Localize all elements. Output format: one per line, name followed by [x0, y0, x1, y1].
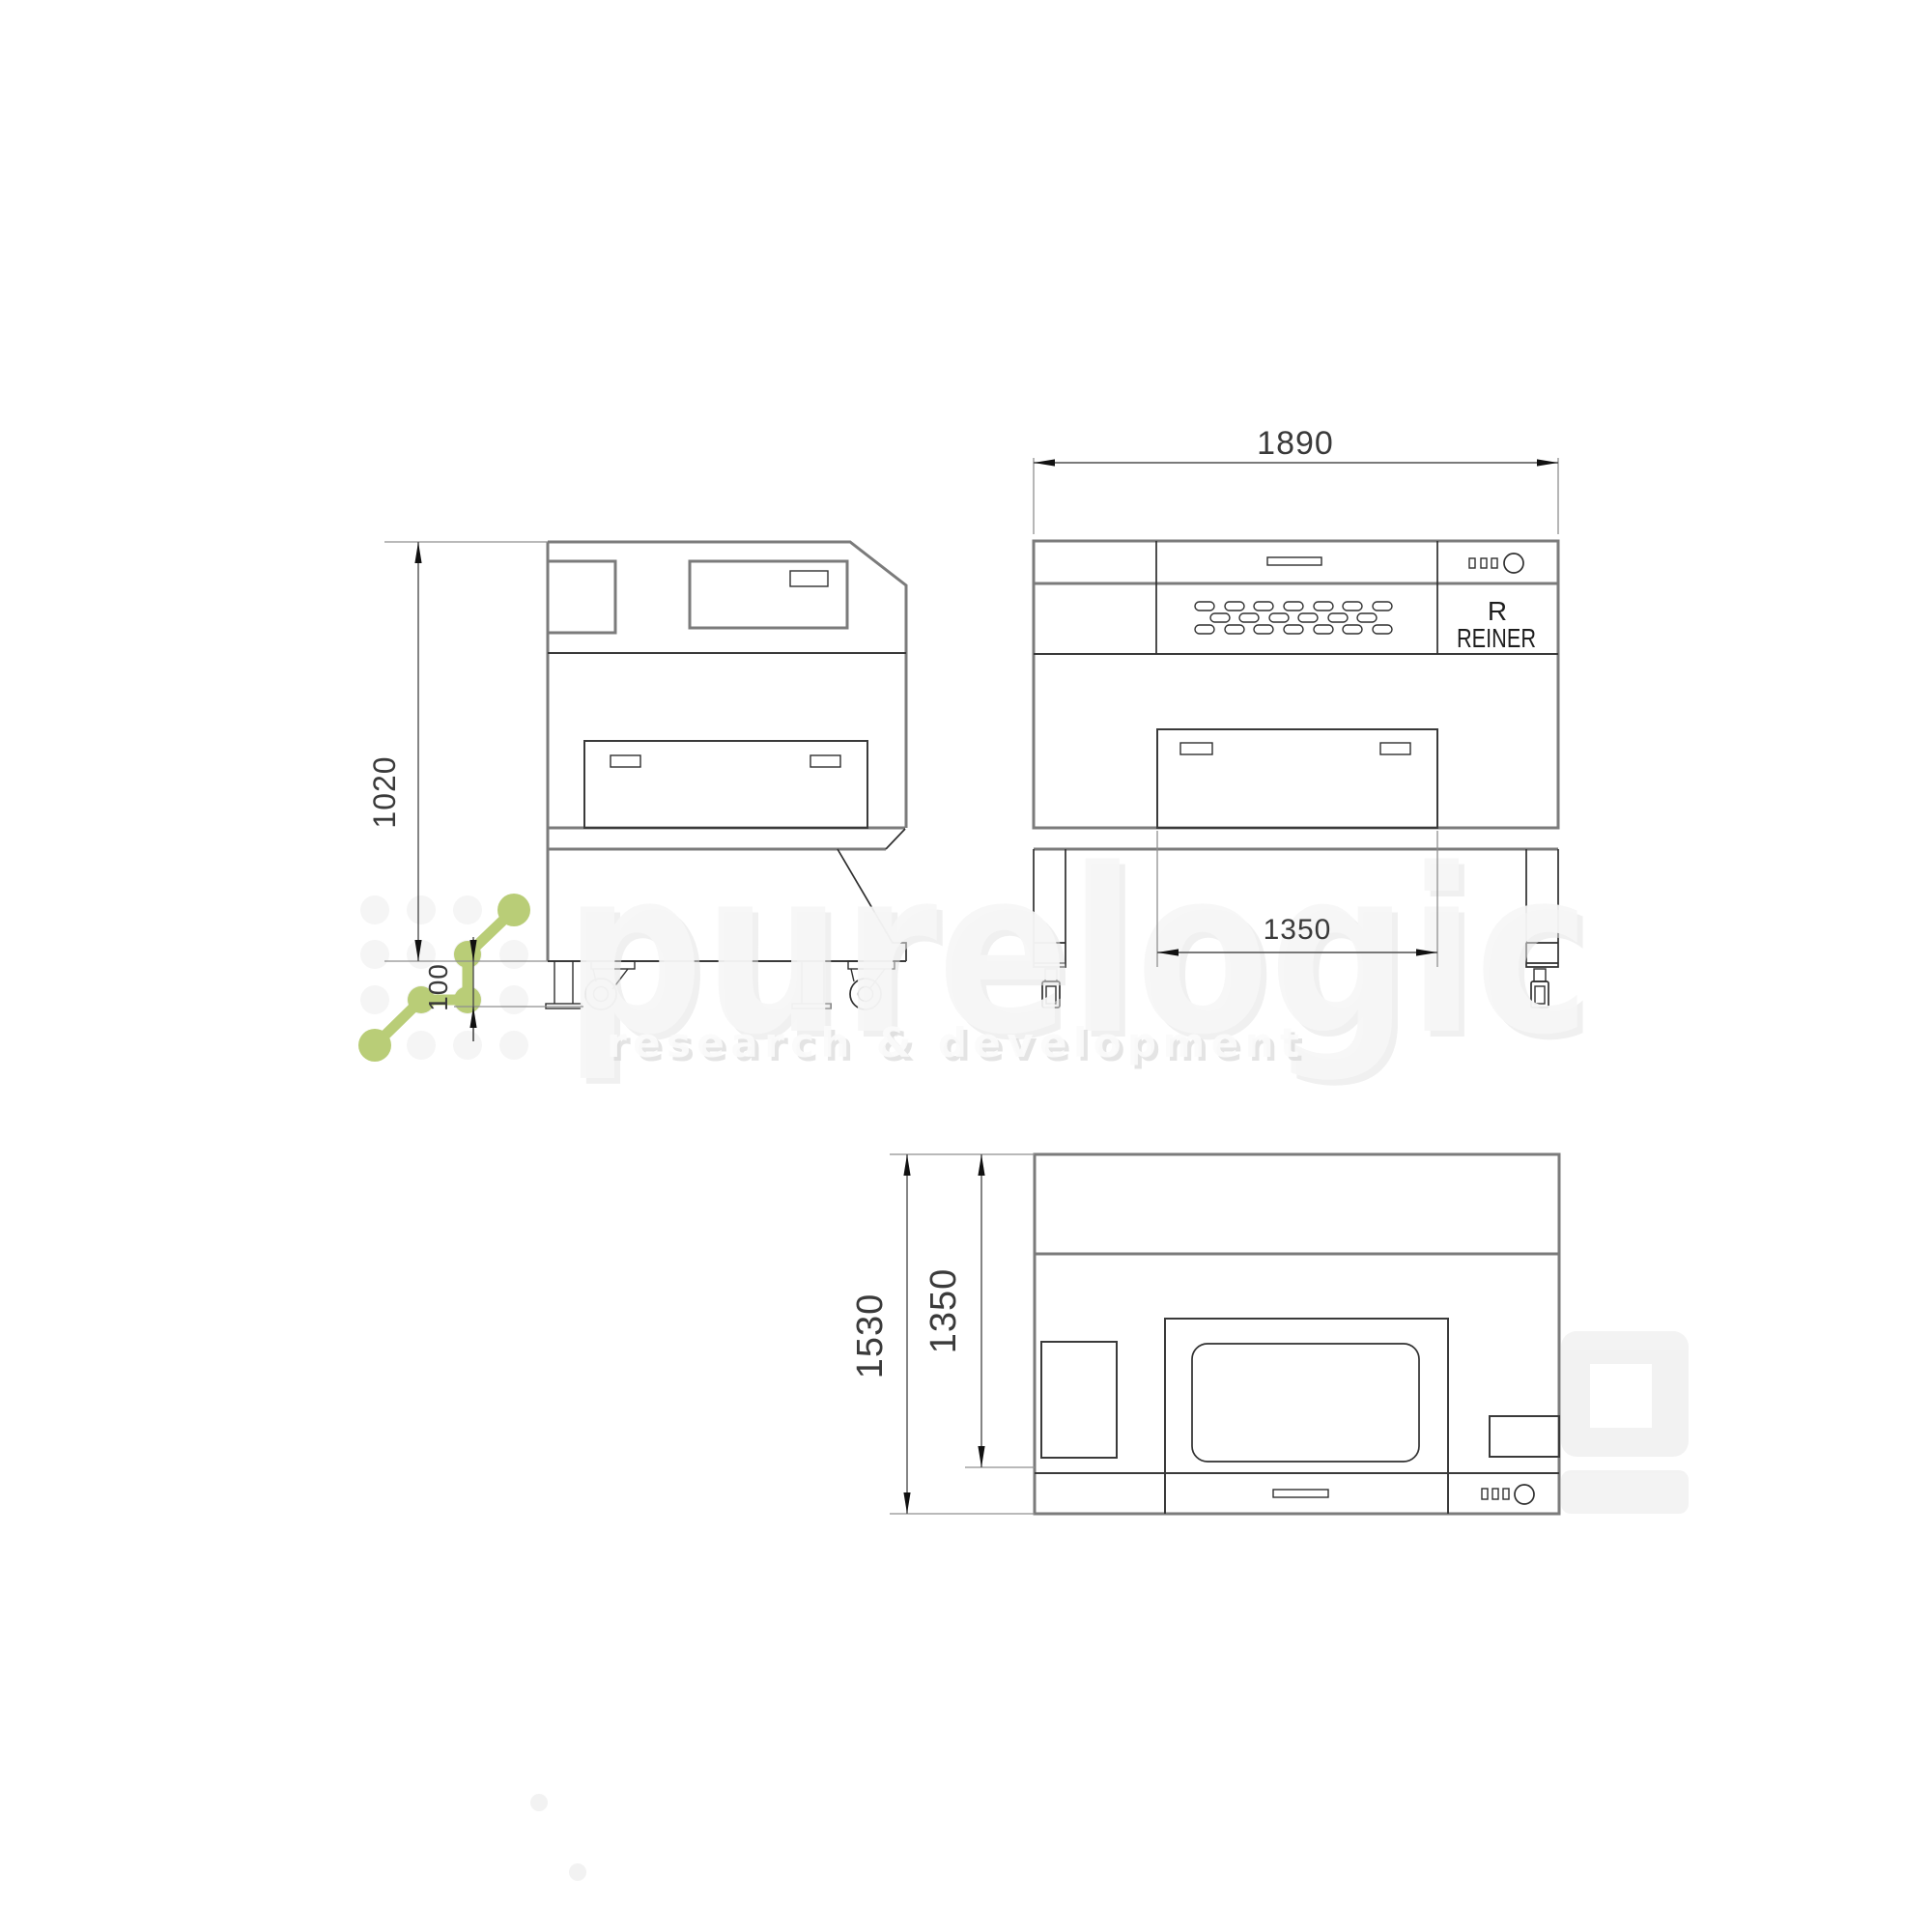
reiner-logo-initial: R: [1488, 596, 1507, 626]
side-window-insert: [790, 571, 828, 586]
drawing-page: R REINER: [0, 0, 1932, 1932]
side-body-top-outline: [548, 542, 906, 828]
reiner-logo: R REINER: [1457, 596, 1536, 653]
front-inner-width-label: 1350: [1264, 914, 1332, 946]
top-view: [1035, 1154, 1559, 1514]
machine-technical-drawing: R REINER: [0, 0, 1932, 1932]
top-depth-total-label: 1530: [850, 1293, 891, 1379]
watermark-fragments: [530, 1331, 1689, 1881]
top-door-window: [1192, 1344, 1419, 1462]
side-height-label: 1020: [367, 755, 402, 828]
side-door-handle-left: [611, 755, 640, 767]
watermark: purelogic purelogic research & developme…: [358, 821, 1689, 1881]
top-body-outline: [1035, 1154, 1559, 1514]
top-left-module: [1041, 1342, 1117, 1458]
top-slot: [1273, 1490, 1328, 1497]
front-width-label: 1890: [1257, 425, 1334, 462]
side-window-small: [548, 561, 615, 633]
top-control-buttons-icon: [1482, 1485, 1534, 1504]
front-door-handle-right: [1380, 743, 1410, 754]
side-door: [584, 741, 867, 828]
top-right-module: [1490, 1416, 1559, 1457]
front-door-handle-left: [1180, 743, 1212, 754]
caster-height-label: 100: [423, 963, 453, 1011]
front-vent-grille: [1195, 602, 1392, 634]
side-door-handle-right: [810, 755, 840, 767]
top-door-outline: [1165, 1319, 1448, 1514]
top-depth-body-label: 1350: [923, 1268, 964, 1354]
front-top-slot: [1267, 557, 1321, 565]
reiner-logo-name: REINER: [1457, 623, 1536, 653]
front-door: [1157, 729, 1437, 828]
front-control-buttons-icon: [1469, 554, 1523, 573]
watermark-tagline: research & development: [607, 1019, 1299, 1066]
